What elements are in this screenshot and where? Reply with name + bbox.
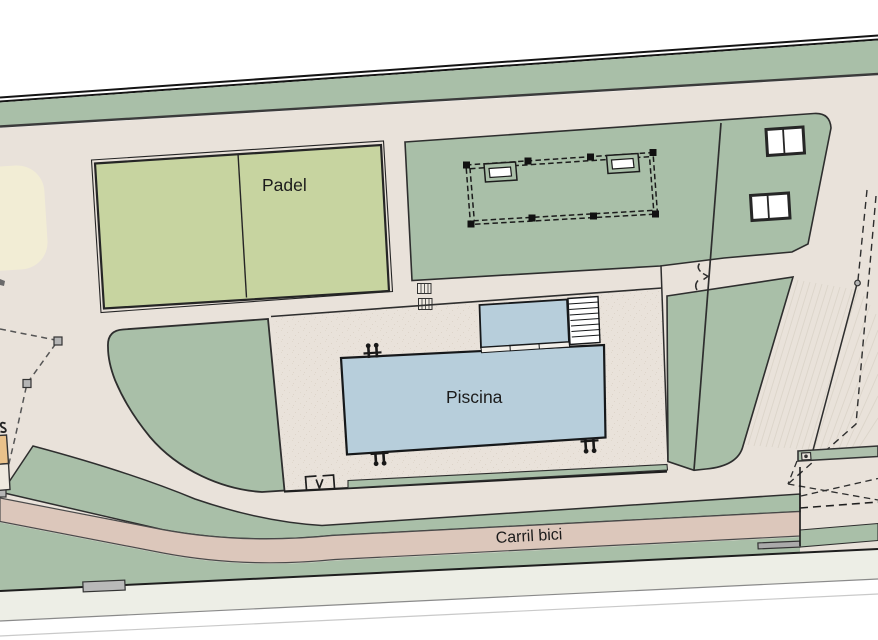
svg-text:Piscina: Piscina [446, 387, 503, 407]
svg-text:Padel: Padel [262, 175, 307, 195]
